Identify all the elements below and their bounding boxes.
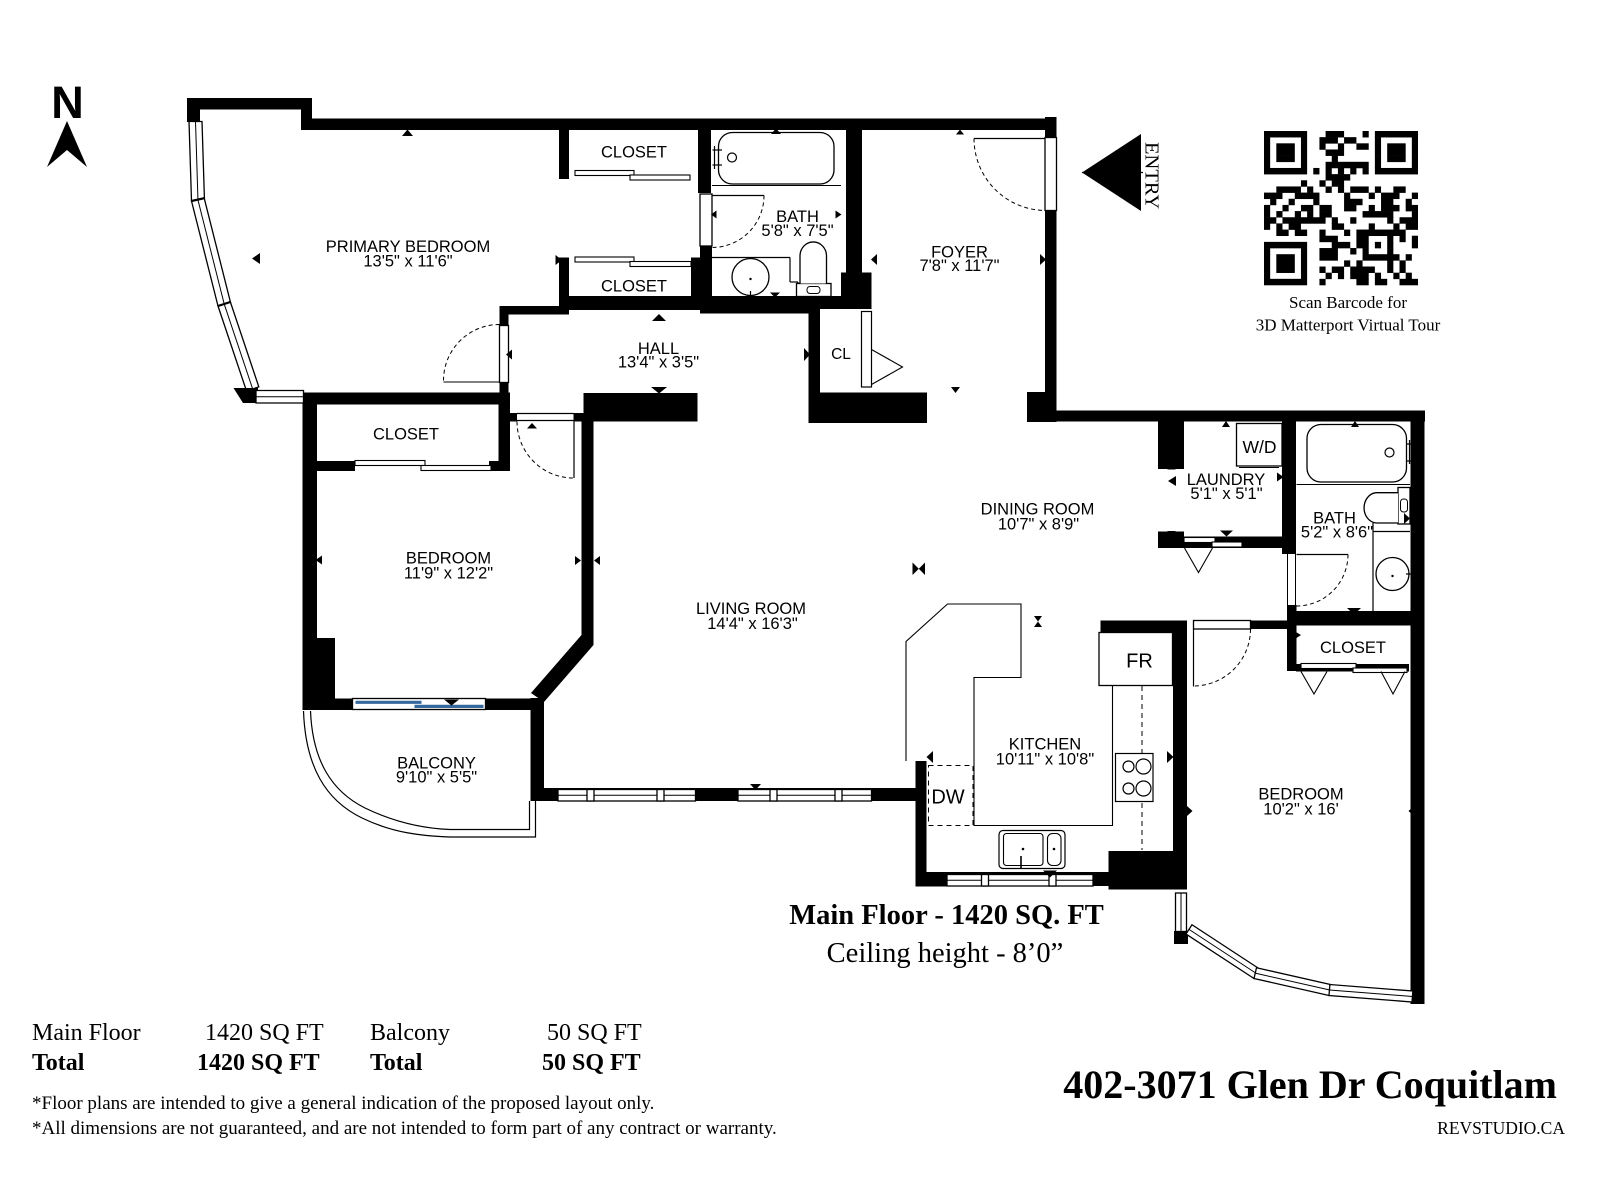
svg-text:DW: DW bbox=[931, 787, 964, 809]
svg-text:W/D: W/D bbox=[1242, 437, 1276, 457]
svg-text:5'1" x 5'1": 5'1" x 5'1" bbox=[1190, 485, 1262, 503]
svg-text:11'9" x 12'2": 11'9" x 12'2" bbox=[404, 565, 493, 583]
svg-text:13'5" x 11'6": 13'5" x 11'6" bbox=[363, 253, 452, 271]
svg-text:REVSTUDIO.CA: REVSTUDIO.CA bbox=[1437, 1118, 1565, 1138]
svg-text:Main Floor - 1420 SQ. FT: Main Floor - 1420 SQ. FT bbox=[789, 900, 1104, 931]
svg-text:14'4" x 16'3": 14'4" x 16'3" bbox=[707, 615, 798, 633]
svg-text:Ceiling height - 8’0”: Ceiling height - 8’0” bbox=[827, 938, 1064, 969]
svg-text:5'8" x 7'5": 5'8" x 7'5" bbox=[761, 222, 833, 240]
svg-text:Main Floor: Main Floor bbox=[32, 1020, 141, 1046]
svg-text:Total: Total bbox=[32, 1050, 85, 1076]
svg-text:5'2" x 8'6": 5'2" x 8'6" bbox=[1301, 524, 1373, 542]
svg-text:*All dimensions are not guaran: *All dimensions are not guaranteed, and … bbox=[32, 1118, 777, 1139]
svg-text:13'4" x 3'5": 13'4" x 3'5" bbox=[618, 354, 699, 372]
svg-text:*Floor plans are intended to g: *Floor plans are intended to give a gene… bbox=[32, 1093, 654, 1114]
svg-text:N: N bbox=[51, 77, 84, 128]
svg-text:CLOSET: CLOSET bbox=[601, 144, 667, 162]
svg-text:7'8" x 11'7": 7'8" x 11'7" bbox=[919, 257, 999, 275]
svg-text:50 SQ FT: 50 SQ FT bbox=[547, 1020, 642, 1046]
svg-text:10'2" x 16': 10'2" x 16' bbox=[1263, 801, 1338, 819]
svg-text:10'11" x 10'8": 10'11" x 10'8" bbox=[996, 751, 1095, 769]
svg-text:10'7" x 8'9": 10'7" x 8'9" bbox=[998, 516, 1079, 534]
svg-text:9'10" x 5'5": 9'10" x 5'5" bbox=[396, 769, 477, 787]
svg-text:1420 SQ FT: 1420 SQ FT bbox=[197, 1050, 320, 1076]
svg-text:ENTRY: ENTRY bbox=[1141, 142, 1163, 209]
svg-text:Scan Barcode for: Scan Barcode for bbox=[1289, 293, 1407, 312]
svg-text:CLOSET: CLOSET bbox=[373, 426, 439, 444]
svg-text:CLOSET: CLOSET bbox=[601, 278, 667, 296]
svg-text:50 SQ FT: 50 SQ FT bbox=[542, 1050, 641, 1076]
svg-text:Balcony: Balcony bbox=[370, 1020, 450, 1046]
svg-text:Total: Total bbox=[370, 1050, 423, 1076]
svg-text:CL: CL bbox=[831, 346, 851, 363]
svg-text:CLOSET: CLOSET bbox=[1320, 639, 1386, 657]
svg-text:1420 SQ FT: 1420 SQ FT bbox=[205, 1020, 324, 1046]
svg-text:3D Matterport Virtual Tour: 3D Matterport Virtual Tour bbox=[1256, 316, 1441, 335]
svg-text:FR: FR bbox=[1126, 651, 1153, 673]
svg-text:402-3071 Glen Dr Coquitlam: 402-3071 Glen Dr Coquitlam bbox=[1063, 1062, 1557, 1107]
